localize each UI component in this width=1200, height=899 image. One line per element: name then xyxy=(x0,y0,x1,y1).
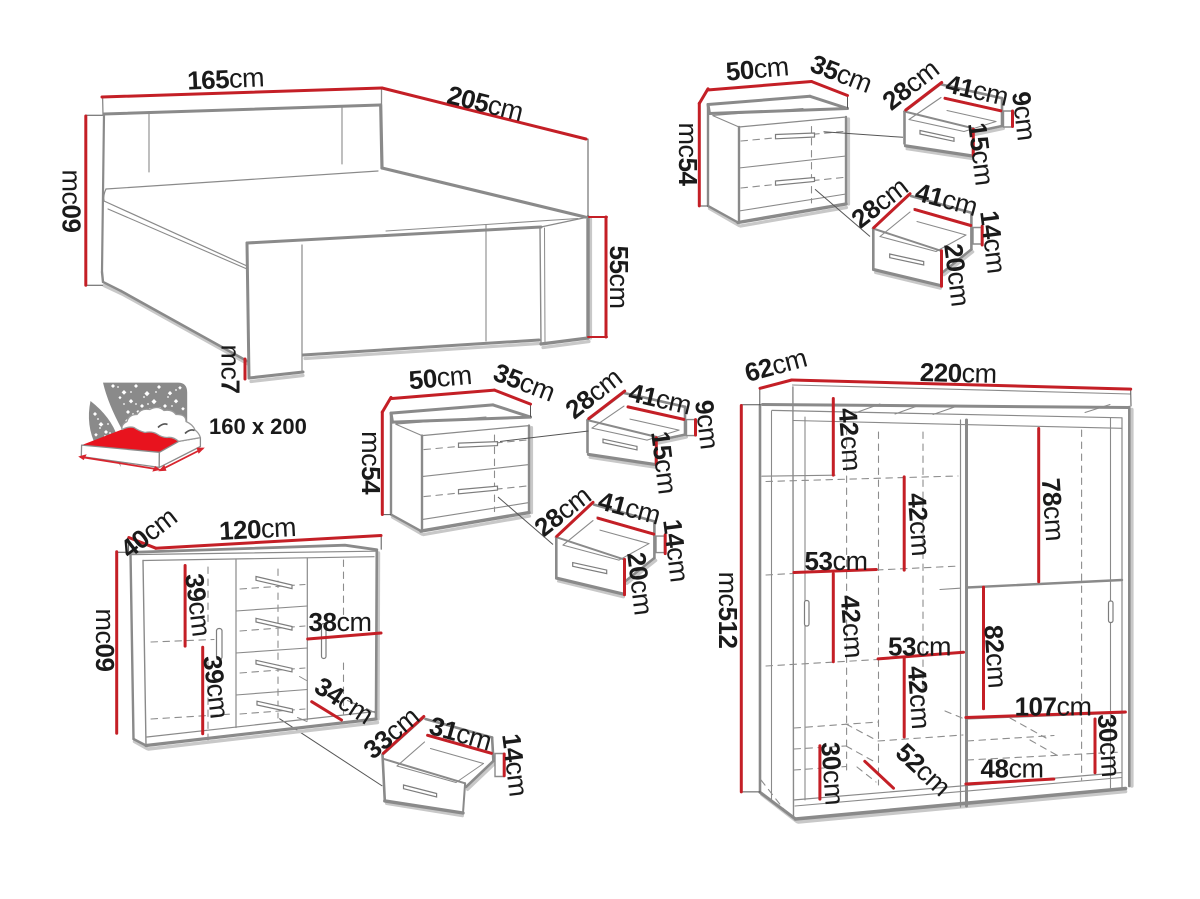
svg-text:42cm: 42cm xyxy=(902,492,936,557)
svg-text:42cm: 42cm xyxy=(835,594,869,659)
svg-text:82cm: 82cm xyxy=(978,624,1012,689)
svg-text:mc512: mc512 xyxy=(713,572,743,649)
svg-text:160 x 200: 160 x 200 xyxy=(209,414,307,439)
svg-text:mc7: mc7 xyxy=(216,345,246,394)
svg-text:78cm: 78cm xyxy=(1036,477,1070,542)
svg-text:107cm: 107cm xyxy=(1015,692,1092,722)
svg-text:38cm: 38cm xyxy=(309,607,372,637)
svg-text:30cm: 30cm xyxy=(1092,713,1126,778)
svg-text:42cm: 42cm xyxy=(902,665,936,730)
svg-text:53cm: 53cm xyxy=(805,546,868,576)
svg-text:mc09: mc09 xyxy=(90,609,120,672)
svg-text:42cm: 42cm xyxy=(833,407,867,472)
svg-text:55cm: 55cm xyxy=(604,246,634,309)
svg-text:50cm: 50cm xyxy=(725,51,790,86)
svg-text:mc54: mc54 xyxy=(673,123,703,187)
svg-text:9cm: 9cm xyxy=(1006,90,1042,142)
svg-text:53cm: 53cm xyxy=(888,632,951,662)
svg-text:30cm: 30cm xyxy=(815,741,849,806)
svg-text:mc09: mc09 xyxy=(57,170,87,233)
svg-text:165cm: 165cm xyxy=(187,62,265,95)
svg-text:120cm: 120cm xyxy=(218,512,296,546)
svg-text:48cm: 48cm xyxy=(981,754,1044,784)
svg-text:220cm: 220cm xyxy=(919,357,997,389)
